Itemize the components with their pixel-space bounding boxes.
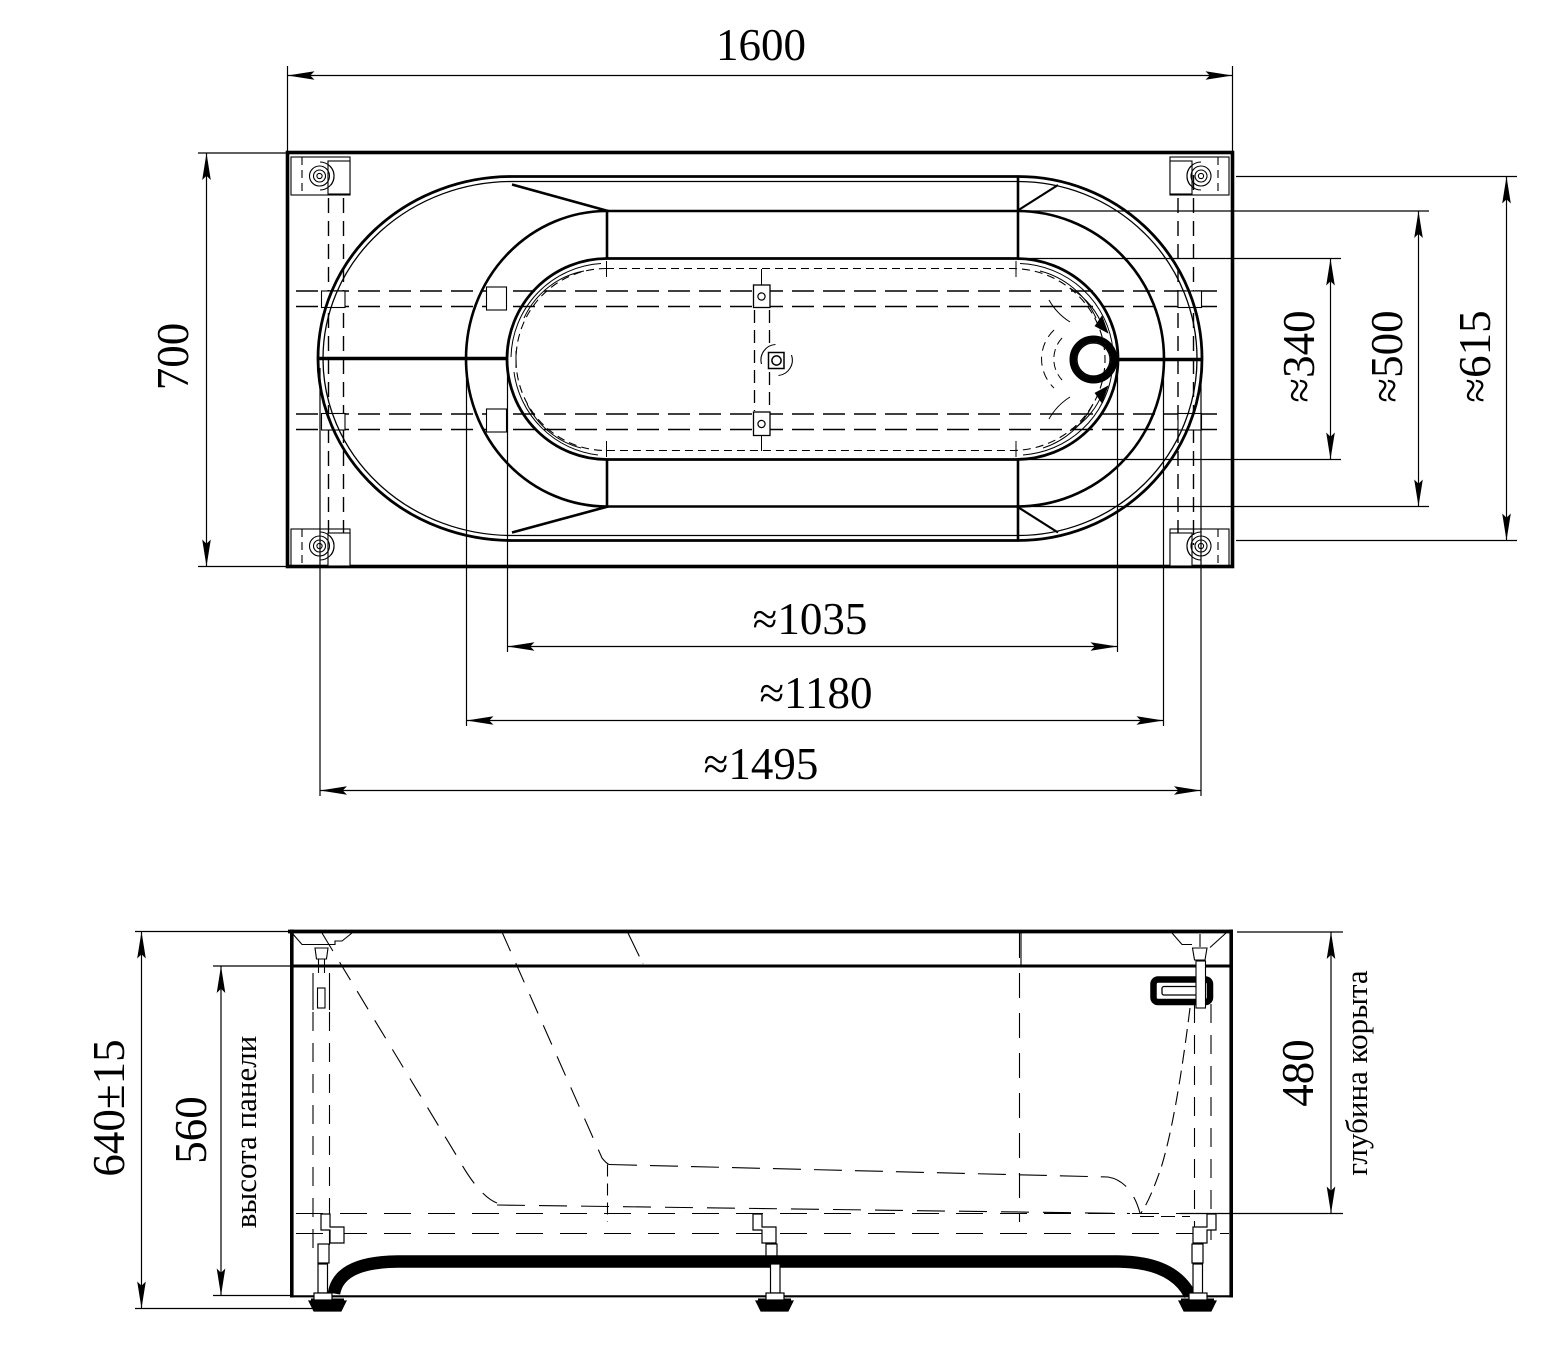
- svg-text:≈340: ≈340: [1274, 310, 1324, 402]
- svg-text:глубина корыта: глубина корыта: [1339, 970, 1374, 1175]
- svg-text:≈1180: ≈1180: [759, 668, 872, 718]
- svg-text:640±15: 640±15: [84, 1039, 134, 1176]
- svg-text:560: 560: [166, 1096, 216, 1164]
- svg-text:≈615: ≈615: [1450, 310, 1500, 402]
- svg-text:≈1035: ≈1035: [753, 594, 868, 644]
- svg-text:1600: 1600: [716, 20, 806, 70]
- svg-text:высота панели: высота панели: [228, 1036, 263, 1229]
- svg-text:480: 480: [1273, 1039, 1323, 1107]
- svg-text:≈1495: ≈1495: [704, 739, 819, 789]
- svg-text:700: 700: [148, 323, 198, 391]
- svg-text:≈500: ≈500: [1362, 310, 1412, 402]
